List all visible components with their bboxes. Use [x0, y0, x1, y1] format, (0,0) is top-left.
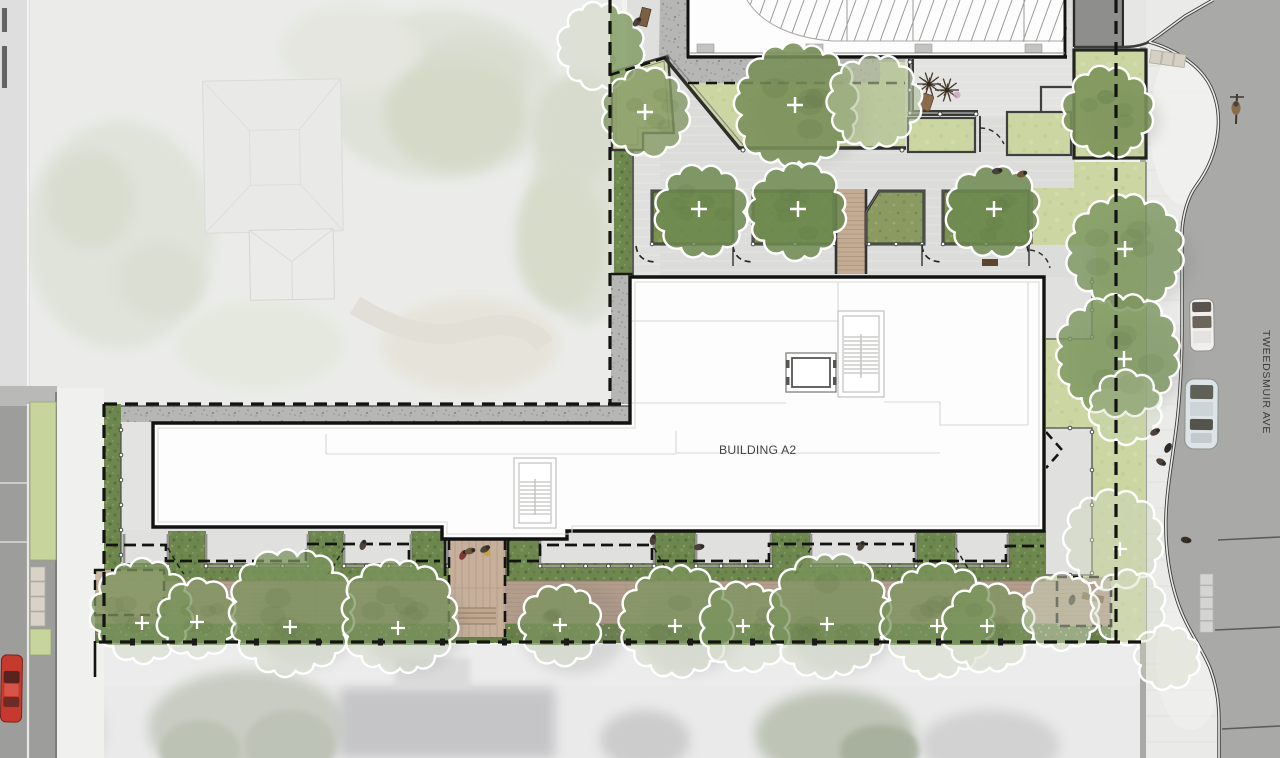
svg-text:TWEEDSMUIR AVE: TWEEDSMUIR AVE [1260, 330, 1272, 434]
svg-text:BUILDING A2: BUILDING A2 [719, 443, 796, 457]
